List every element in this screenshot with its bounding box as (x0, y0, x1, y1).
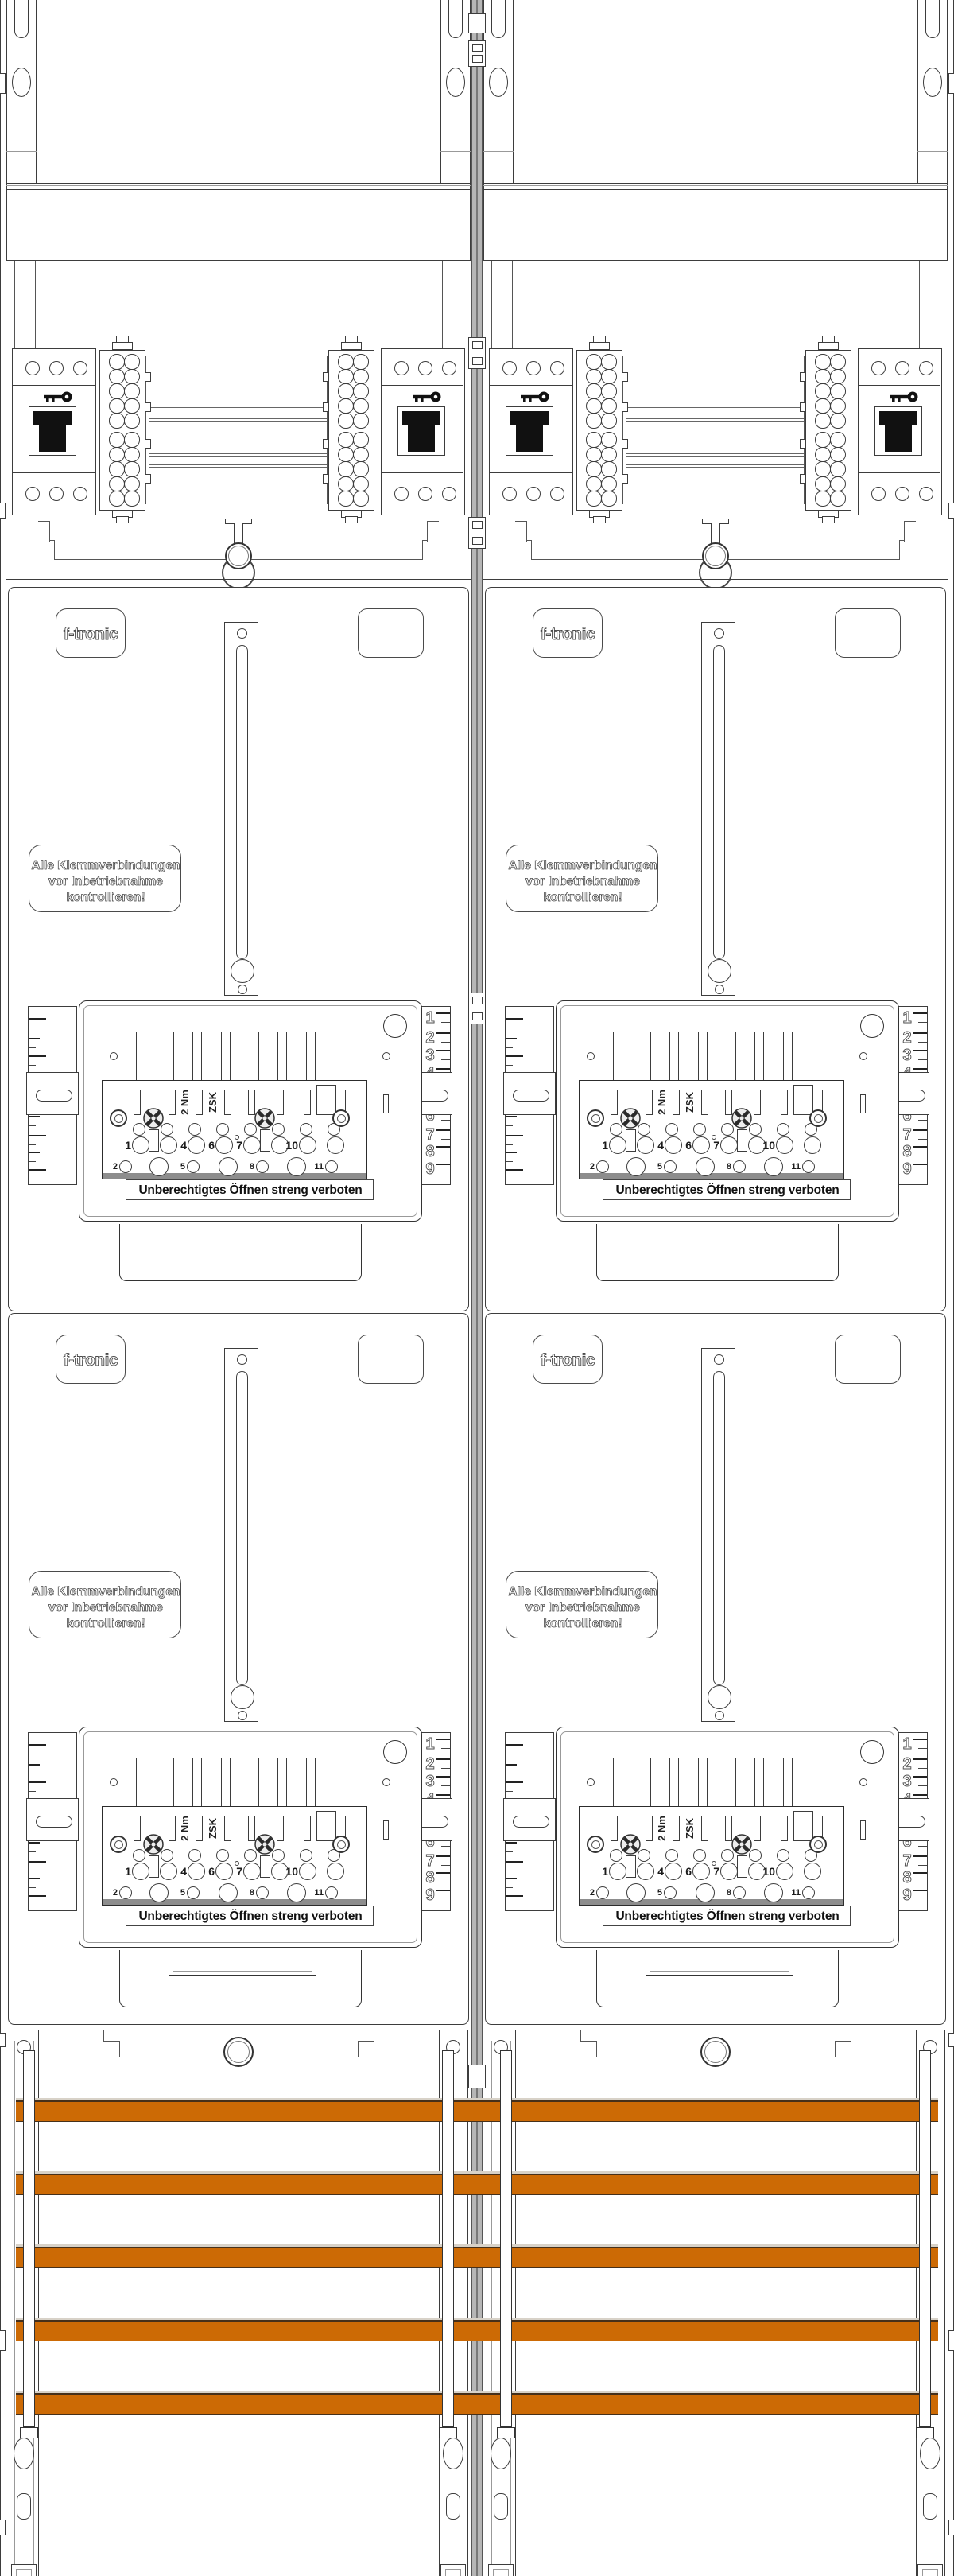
busbar-support-foot (916, 2427, 934, 2438)
junction-clamp-screw (472, 537, 483, 545)
junction-clamp-screw (472, 357, 483, 365)
busbar-support-foot (497, 2427, 515, 2438)
junction-clamp (468, 993, 486, 1024)
junction-clamp-screw (472, 55, 483, 63)
junction-clamp (468, 13, 486, 33)
junction-clamp (468, 40, 486, 67)
busbar-support (442, 2050, 454, 2427)
junction-clamp (468, 337, 486, 369)
busbar (16, 2393, 938, 2415)
junction-clamp-screw (472, 44, 483, 52)
busbar-support (919, 2050, 931, 2427)
busbar (16, 2100, 938, 2122)
busbar (16, 2247, 938, 2268)
busbar-and-junction-overlay (0, 0, 954, 2576)
junction-clamp-screw (472, 521, 483, 529)
junction-clamp-screw (472, 341, 483, 349)
junction-clamp (468, 2065, 486, 2088)
busbar (16, 2174, 938, 2195)
junction-clamp-screw (472, 1012, 483, 1020)
busbar-support-foot (439, 2427, 457, 2438)
busbar-support (500, 2050, 512, 2427)
busbar-support-foot (20, 2427, 38, 2438)
meter-cabinet-drawing: f-tronicAlle Klemmverbindungenvor Inbetr… (0, 0, 954, 2576)
junction-clamp-screw (472, 997, 483, 1004)
junction-clamp (468, 517, 486, 549)
busbar-support (23, 2050, 35, 2427)
busbar (16, 2320, 938, 2341)
